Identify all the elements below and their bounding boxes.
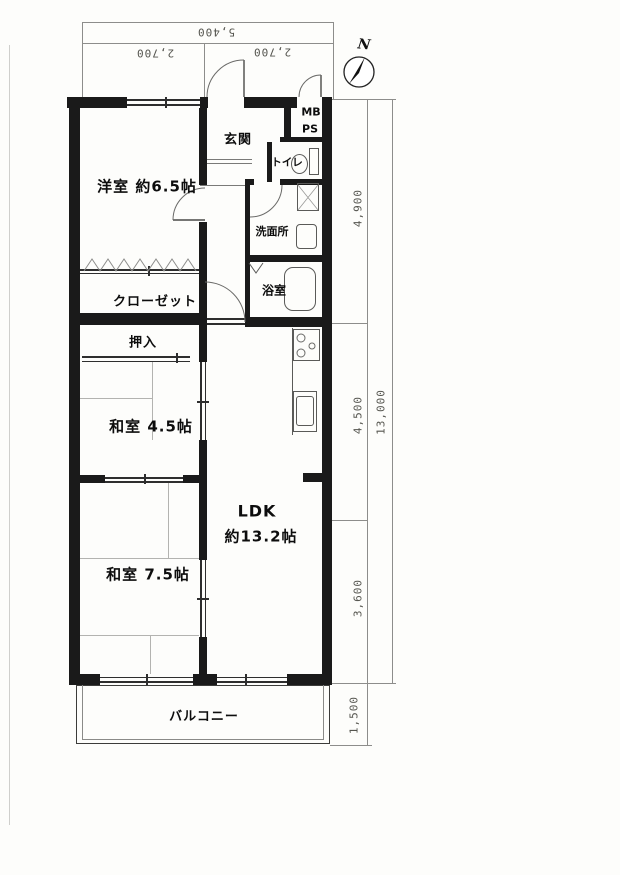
label-western-room: 洋室 約6.5帖	[97, 176, 197, 197]
compass-north-label: N	[357, 36, 371, 53]
burner-icon	[309, 343, 315, 349]
washing-machine-x	[298, 185, 318, 210]
hall-door-arc	[205, 282, 245, 322]
label-toilet: トイレ	[271, 155, 303, 170]
label-japanese-room-75: 和室 7.5帖	[106, 564, 190, 585]
label-genkan: 玄関	[224, 129, 252, 148]
bath-fold-door-mark	[249, 263, 263, 273]
washroom-door-arc	[250, 185, 282, 217]
label-japanese-room-45: 和室 4.5帖	[109, 416, 193, 437]
floor-plan-scan: 5,400 2,700 2,700 4,900 4,500 3,600 13,0…	[0, 0, 620, 875]
label-mb: MB	[301, 106, 320, 119]
entrance-door-arc	[207, 60, 244, 97]
burner-icon	[297, 349, 305, 357]
label-ps: PS	[302, 123, 318, 136]
meterbox-door-arc	[299, 75, 321, 97]
burner-icon	[297, 334, 305, 342]
label-balcony: バルコニー	[169, 706, 239, 725]
label-oshiire: 押入	[129, 332, 157, 351]
label-closet: クローゼット	[113, 291, 197, 310]
label-ldk: LDK	[238, 502, 277, 521]
label-bath: 浴室	[262, 282, 286, 299]
label-washroom: 洗面所	[256, 223, 289, 239]
closet-hanger-zigzag	[84, 259, 196, 271]
label-ldk-size: 約13.2帖	[224, 526, 297, 547]
